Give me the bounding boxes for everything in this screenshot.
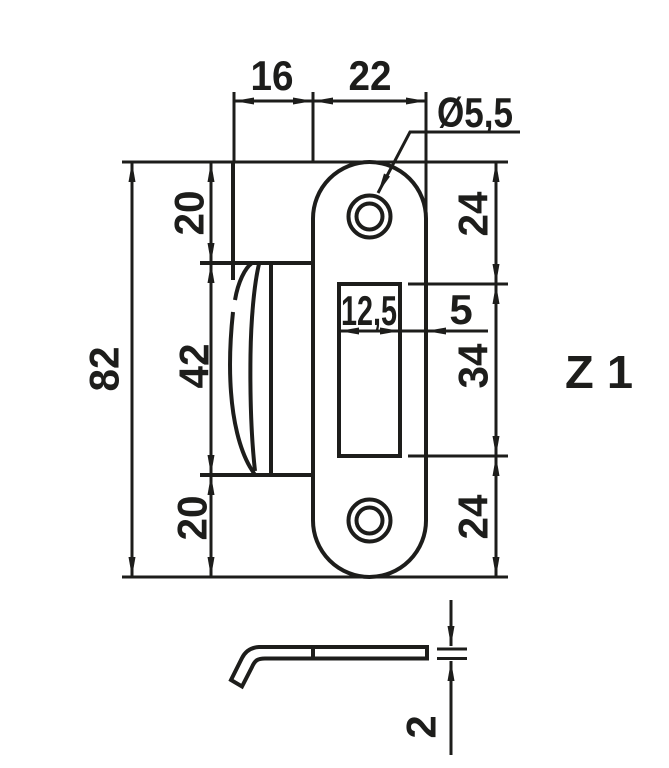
side-view: 2 — [231, 600, 467, 755]
front-view: 16 22 Ø5,5 12,5 5 82 20 42 20 24 34 24 — [81, 52, 520, 577]
technical-drawing-strike-plate: 16 22 Ø5,5 12,5 5 82 20 42 20 24 34 24 2… — [0, 0, 669, 768]
plate-outline — [200, 162, 426, 577]
dim-plate-width: 22 — [349, 52, 392, 99]
dim-hole-diameter: Ø5,5 — [437, 89, 513, 136]
bottom-screw-hole-inner — [357, 508, 383, 534]
dim-right-middle: 34 — [450, 343, 497, 389]
dim-overall-height: 82 — [81, 347, 128, 392]
dim-flange-width: 16 — [251, 52, 294, 99]
dim-thickness: 2 — [398, 715, 445, 738]
top-screw-hole-inner — [357, 204, 383, 230]
plate-body — [313, 162, 426, 577]
dim-right-top: 24 — [450, 191, 497, 237]
dim-right-bottom: 24 — [450, 494, 497, 540]
dim-left-bottom: 20 — [169, 496, 216, 541]
drawing-label: Z 1 — [565, 346, 633, 398]
dim-left-middle: 42 — [171, 344, 218, 389]
profile-outline — [231, 647, 427, 687]
dim-slot-width: 12,5 — [341, 287, 397, 334]
lip-inner-curve — [250, 264, 259, 471]
dim-slot-to-edge: 5 — [449, 286, 472, 333]
lip-outer-curve — [235, 263, 252, 300]
dim-left-top: 20 — [166, 191, 213, 236]
